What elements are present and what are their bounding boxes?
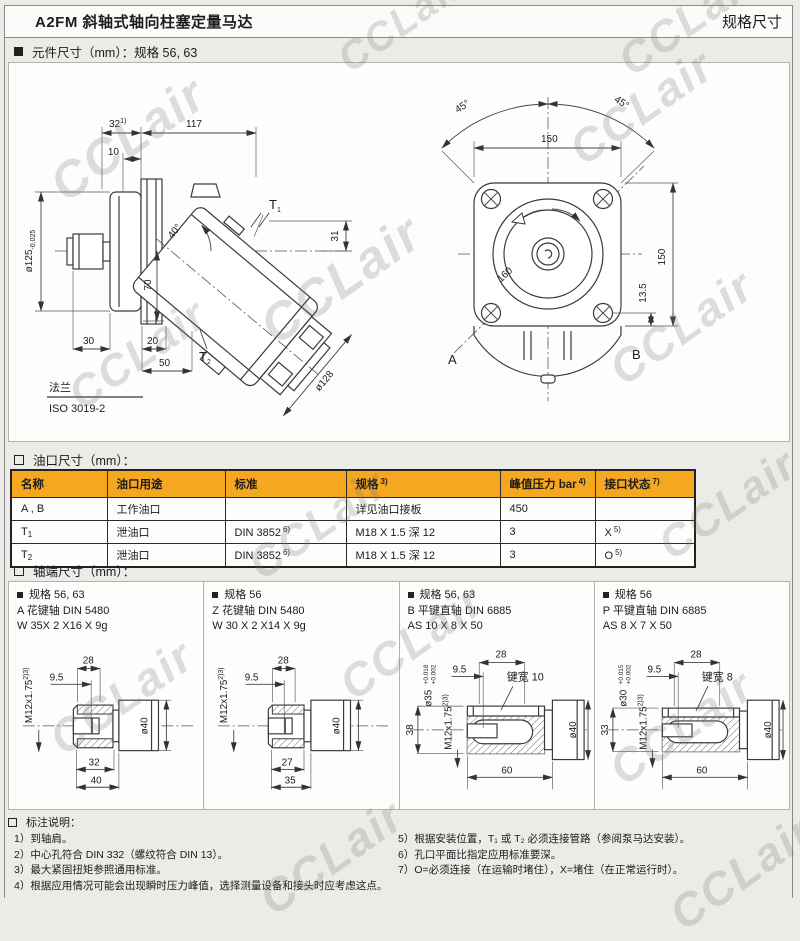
panel-spec: 规格 56 xyxy=(603,588,789,604)
cell-text: 详见油口接板 xyxy=(356,504,422,516)
col-spec: 规格3) xyxy=(346,470,500,498)
dim-d40-label: ø40 xyxy=(763,720,774,738)
panel-size: AS 10 X 8 X 50 xyxy=(408,619,594,635)
svg-text:321): 321) xyxy=(109,118,126,130)
notes-section: 标注说明： 1）到轴肩。 2）中心孔符合 DIN 332（螺纹符合 DIN 13… xyxy=(8,814,792,894)
shaft-panel-z: 规格 56 Z 花键轴 DIN 5480 W 30 X 2 X14 X 9g 2… xyxy=(203,582,398,809)
dia-label: ø35 xyxy=(423,689,434,707)
cell-use: 工作油口 xyxy=(107,498,225,521)
thread-callout: M12x1.752)3) xyxy=(218,667,234,751)
section-marker-hollow xyxy=(14,566,24,576)
thread-callout: M12x1.752)3) xyxy=(637,694,652,767)
key-width-callout: 键宽 8 xyxy=(696,669,733,711)
note-7: 7）O=必须连接（在运输时堵住），X=堵住（在正常运行时）。 xyxy=(398,863,792,879)
dim-9-5-label: 9.5 xyxy=(452,664,466,675)
cell-text: M18 X 1.5 深 12 xyxy=(356,527,436,539)
dim-32-sup: 1) xyxy=(120,118,126,125)
dim-d125-label: ø125 xyxy=(24,249,35,272)
note-3: 3）最大紧固扭矩参照通用标准。 xyxy=(14,863,398,879)
dim-28: 28 xyxy=(77,655,100,702)
panel-type: Z 花键轴 DIN 5480 xyxy=(212,604,398,620)
section-shaft-dims: 轴端尺寸（mm）： xyxy=(14,561,135,580)
spline-shaft-drawing: 28 9.5 M12x1.752)3) ø40 32 xyxy=(17,638,201,798)
shaft-profile xyxy=(662,700,779,759)
note-4: 4）根据应用情况可能会出现瞬时压力峰值，选择测量设备和接头时应考虑这点。 xyxy=(14,879,398,895)
dia-tolerance-callout: ø30 +0.015 +0.002 xyxy=(618,664,633,707)
panel-size: W 30 X 2 X14 X 9g xyxy=(212,619,398,635)
panel-spec-text: 规格 56, 63 xyxy=(29,589,85,601)
cell-text: 3 xyxy=(510,526,516,538)
cell-name: T1 xyxy=(11,521,107,544)
key-shaft-drawing: 28 9.5 键宽 10 M12x1.752)3) ø35 +0.018 +0.… xyxy=(408,638,592,798)
dim-31: 31 xyxy=(269,221,352,251)
dim-d125-tol: -0.025 xyxy=(30,230,37,250)
note-5: 5）根据安装位置，T₁ 或 T₂ 必须连接管路（参阅泵马达安装）。 xyxy=(398,832,792,848)
col-spec-text: 规格 xyxy=(356,479,379,491)
cell-text: A , B xyxy=(21,503,44,515)
cell-sub: 1 xyxy=(28,530,32,539)
dim-31-label: 31 xyxy=(330,230,341,242)
port-t2-sub: 2 xyxy=(207,359,211,366)
section-marker-hollow xyxy=(14,455,24,465)
dim-20-label: 20 xyxy=(147,336,159,347)
col-state-sup: 7) xyxy=(653,477,660,486)
notes-left-column: 1）到轴肩。 2）中心孔符合 DIN 332（螺纹符合 DIN 13）。 3）最… xyxy=(8,832,398,894)
cell-spec: M18 X 1.5 深 12 xyxy=(346,544,500,568)
cell-text: X xyxy=(605,527,612,539)
ports-row-t1: T1 泄油口 DIN 38526) M18 X 1.5 深 12 3 X5) xyxy=(11,521,695,544)
thread-sup: 2)3) xyxy=(442,694,449,706)
col-pressure: 峰值压力 bar4) xyxy=(500,470,595,498)
cell-spec: 详见油口接板 xyxy=(346,498,500,521)
thread-sup: 2)3) xyxy=(218,667,225,679)
spline-shaft-drawing: 28 9.5 M12x1.752)3) ø40 27 xyxy=(212,638,396,798)
spec-marker xyxy=(408,592,414,598)
port-t1-callout: T1 xyxy=(251,197,281,237)
dim-117: 117 xyxy=(142,119,256,177)
dim-len1-label: 27 xyxy=(282,757,293,768)
dim-30: 30 xyxy=(73,271,110,349)
panel-type: A 花键轴 DIN 5480 xyxy=(17,604,203,620)
key-width-callout: 键宽 10 xyxy=(500,669,543,710)
motor-side-view-drawing: ø128 40° 321) 117 10 xyxy=(11,69,407,429)
motor-rear-view-drawing: 160 150 45° 45° 150 13.5 xyxy=(406,69,706,429)
key-width-label: 键宽 10 xyxy=(506,669,543,683)
cell-sup: 6) xyxy=(283,525,290,534)
dim-13-5-label: 13.5 xyxy=(638,283,649,303)
cell-name: A , B xyxy=(11,498,107,521)
section-shafts-label: 轴端尺寸（mm）： xyxy=(33,561,135,580)
cell-pressure: 3 xyxy=(500,544,595,568)
dia-tol-top: +0.018 xyxy=(422,664,429,684)
col-name: 名称 xyxy=(11,470,107,498)
panel-size: AS 8 X 7 X 50 xyxy=(603,619,789,635)
cell-text: DIN 3852 xyxy=(235,527,281,539)
flange-note: 法兰 ISO 3019-2 xyxy=(47,380,143,415)
dim-70-label: 70 xyxy=(143,279,154,291)
ports-table: 名称 油口用途 标准 规格3) 峰值压力 bar4) 接口状态7) A , B … xyxy=(10,469,696,568)
thread-callout: M12x1.752)3) xyxy=(23,667,39,751)
cell-standard: DIN 38526) xyxy=(225,521,346,544)
section-marker-filled xyxy=(14,47,23,56)
shaft-panels-box: 规格 56, 63 A 花键轴 DIN 5480 W 35X 2 X16 X 9… xyxy=(8,581,790,810)
dim-len: 60 xyxy=(662,753,747,789)
cell-text: DIN 3852 xyxy=(235,550,281,562)
cell-state xyxy=(595,498,695,521)
thread-label: M12x1.75 xyxy=(24,679,35,723)
dim-d40-label: ø40 xyxy=(140,716,151,734)
dim-9-5-label: 9.5 xyxy=(647,664,661,675)
page-title: A2FM 斜轴式轴向柱塞定量马达 xyxy=(35,11,253,32)
cell-pressure: 3 xyxy=(500,521,595,544)
panel-spec-text: 规格 56 xyxy=(615,589,652,601)
flange-label-std: ISO 3019-2 xyxy=(49,403,105,415)
col-spec-sup: 3) xyxy=(381,477,388,486)
panel-type: P 平键直轴 DIN 6885 xyxy=(603,604,789,620)
panel-spec: 规格 56 xyxy=(212,588,398,604)
component-drawing-box: ø128 40° 321) 117 10 xyxy=(8,62,790,442)
page-title-right: 规格尺寸 xyxy=(722,11,782,32)
svg-text:M12x1.752)3): M12x1.752)3) xyxy=(218,667,230,723)
cell-text: O xyxy=(605,550,614,562)
angle-45-left-label: 45° xyxy=(453,98,472,115)
svg-text:M12x1.752)3): M12x1.752)3) xyxy=(23,667,35,723)
thread-sup: 2)3) xyxy=(637,694,644,706)
thread-sup: 2)3) xyxy=(23,667,30,679)
lower-housing xyxy=(474,326,621,383)
note-6: 6）孔口平面比指定应用标准要深。 xyxy=(398,848,792,864)
col-use-text: 油口用途 xyxy=(117,479,163,491)
ports-table-header-row: 名称 油口用途 标准 规格3) 峰值压力 bar4) 接口状态7) xyxy=(11,470,695,498)
section-marker-hollow xyxy=(8,818,17,827)
port-t1-sub: 1 xyxy=(277,207,281,214)
cell-sup: 6) xyxy=(283,548,290,557)
dim-d128-label: ø128 xyxy=(313,369,336,394)
dim-117-label: 117 xyxy=(186,119,202,130)
cell-text: T xyxy=(21,526,28,538)
port-t1-label: T xyxy=(269,197,277,212)
cell-state: O5) xyxy=(595,544,695,568)
key-shaft-drawing: 28 9.5 键宽 8 M12x1.752)3) ø30 +0.015 +0.0… xyxy=(603,638,787,798)
col-name-text: 名称 xyxy=(21,479,44,491)
col-pressure-sup: 4) xyxy=(579,477,586,486)
dia-tol-top: +0.015 xyxy=(618,664,625,684)
panel-spec: 规格 56, 63 xyxy=(17,588,203,604)
shaft-panel-a: 规格 56, 63 A 花键轴 DIN 5480 W 35X 2 X16 X 9… xyxy=(9,582,203,809)
port-a-label: A xyxy=(448,352,457,367)
dim-10-label: 10 xyxy=(108,147,120,158)
dim-28: 28 xyxy=(273,655,296,702)
datasheet-page: { "watermark": "CCLair", "header": {"tit… xyxy=(0,0,800,898)
section-port-dims: 油口尺寸（mm）： xyxy=(14,450,135,469)
col-standard-text: 标准 xyxy=(235,479,258,491)
panel-spec: 规格 56, 63 xyxy=(408,588,594,604)
panel-size: W 35X 2 X16 X 9g xyxy=(17,619,203,635)
cell-text: 450 xyxy=(510,503,528,515)
ports-row-ab: A , B 工作油口 详见油口接板 450 xyxy=(11,498,695,521)
dim-d40-label: ø40 xyxy=(332,716,343,734)
spec-marker xyxy=(212,592,218,598)
shaft-panel-b: 规格 56, 63 B 平键直轴 DIN 6885 AS 10 X 8 X 50 xyxy=(399,582,594,809)
col-standard: 标准 xyxy=(225,470,346,498)
col-pressure-text: 峰值压力 bar xyxy=(510,479,577,491)
dim-28-label: 28 xyxy=(278,655,289,666)
dim-150-right: 150 xyxy=(625,183,678,326)
col-state: 接口状态7) xyxy=(595,470,695,498)
svg-text:M12x1.752)3): M12x1.752)3) xyxy=(637,694,649,750)
dim-28-label: 28 xyxy=(83,655,94,666)
dim-d40-label: ø40 xyxy=(568,720,579,738)
cell-text: T xyxy=(21,549,28,561)
cell-sup: 5) xyxy=(614,525,621,534)
dim-50-label: 50 xyxy=(159,358,171,369)
dim-28-label: 28 xyxy=(690,649,701,660)
dim-len: 60 xyxy=(467,755,552,789)
cell-pressure: 450 xyxy=(500,498,595,521)
note-2: 2）中心孔符合 DIN 332（螺纹符合 DIN 13）。 xyxy=(14,848,398,864)
cell-text: 3 xyxy=(510,549,516,561)
dim-len1-label: 32 xyxy=(89,757,100,768)
col-use: 油口用途 xyxy=(107,470,225,498)
cell-standard xyxy=(225,498,346,521)
dim-28-label: 28 xyxy=(495,649,506,660)
dia-tol-bot: +0.002 xyxy=(625,664,632,684)
dim-len2-label: 40 xyxy=(91,775,102,786)
col-state-text: 接口状态 xyxy=(605,479,651,491)
cell-text: 泄油口 xyxy=(117,527,150,539)
dia-tol-bot: +0.002 xyxy=(430,664,437,684)
panel-spec-text: 规格 56, 63 xyxy=(420,589,476,601)
dia-label: ø30 xyxy=(618,689,629,707)
flange-label-cn: 法兰 xyxy=(49,380,71,394)
svg-text:ø125-0.025: ø125-0.025 xyxy=(24,230,37,273)
dim-height-label: 38 xyxy=(404,723,415,734)
angle-45-right-label: 45° xyxy=(612,94,631,111)
cell-spec: M18 X 1.5 深 12 xyxy=(346,521,500,544)
dim-9-5-label: 9.5 xyxy=(245,672,259,683)
shaft-profile xyxy=(467,700,584,759)
thread-label: M12x1.75 xyxy=(443,705,454,749)
note-1: 1）到轴肩。 xyxy=(14,832,398,848)
dim-len-label: 60 xyxy=(696,765,707,776)
key-width-label: 键宽 8 xyxy=(702,669,733,683)
svg-text:T1: T1 xyxy=(269,197,281,214)
port-t2-label: T xyxy=(199,349,207,364)
dia-tolerance-callout: ø35 +0.018 +0.002 xyxy=(422,664,437,707)
dim-150-top-label: 150 xyxy=(541,134,558,145)
spec-marker xyxy=(17,592,23,598)
thread-callout: M12x1.752)3) xyxy=(442,694,457,767)
dim-len2-label: 35 xyxy=(285,775,296,786)
shaft-panel-p: 规格 56 P 平键直轴 DIN 6885 AS 8 X 7 X 50 xyxy=(594,582,789,809)
title-bar: A2FM 斜轴式轴向柱塞定量马达 规格尺寸 xyxy=(4,5,793,38)
section-component-label: 元件尺寸（mm）：规格 56, 63 xyxy=(32,42,197,61)
section-component-dims: 元件尺寸（mm）：规格 56, 63 xyxy=(14,42,197,61)
dim-10: 10 xyxy=(108,147,141,192)
port-b-label: B xyxy=(632,347,641,362)
thread-label: M12x1.75 xyxy=(219,679,230,723)
dim-32-label: 32 xyxy=(109,119,121,130)
dim-height-label: 33 xyxy=(600,723,611,734)
cell-state: X5) xyxy=(595,521,695,544)
panel-type: B 平键直轴 DIN 6885 xyxy=(408,604,594,620)
cell-text: M18 X 1.5 深 12 xyxy=(356,550,436,562)
notes-right-column: 5）根据安装位置，T₁ 或 T₂ 必须连接管路（参阅泵马达安装）。 6）孔口平面… xyxy=(398,832,792,894)
cell-use: 泄油口 xyxy=(107,521,225,544)
dim-150-top: 150 xyxy=(474,134,621,177)
section-notes: 标注说明： xyxy=(8,814,792,830)
dim-150-right-label: 150 xyxy=(657,248,668,265)
section-notes-label: 标注说明： xyxy=(26,814,81,830)
cell-standard: DIN 38526) xyxy=(225,544,346,568)
cell-sup: 5) xyxy=(615,548,622,557)
section-ports-label: 油口尺寸（mm）： xyxy=(33,450,135,469)
thread-label: M12x1.75 xyxy=(638,705,649,749)
output-shaft xyxy=(67,234,110,269)
dim-len-label: 60 xyxy=(501,765,512,776)
dim-9-5-label: 9.5 xyxy=(50,672,64,683)
cell-text: 工作油口 xyxy=(117,504,161,516)
dim-30-label: 30 xyxy=(83,336,95,347)
panel-spec-text: 规格 56 xyxy=(224,589,261,601)
spec-marker xyxy=(603,592,609,598)
svg-text:M12x1.752)3): M12x1.752)3) xyxy=(442,694,454,750)
